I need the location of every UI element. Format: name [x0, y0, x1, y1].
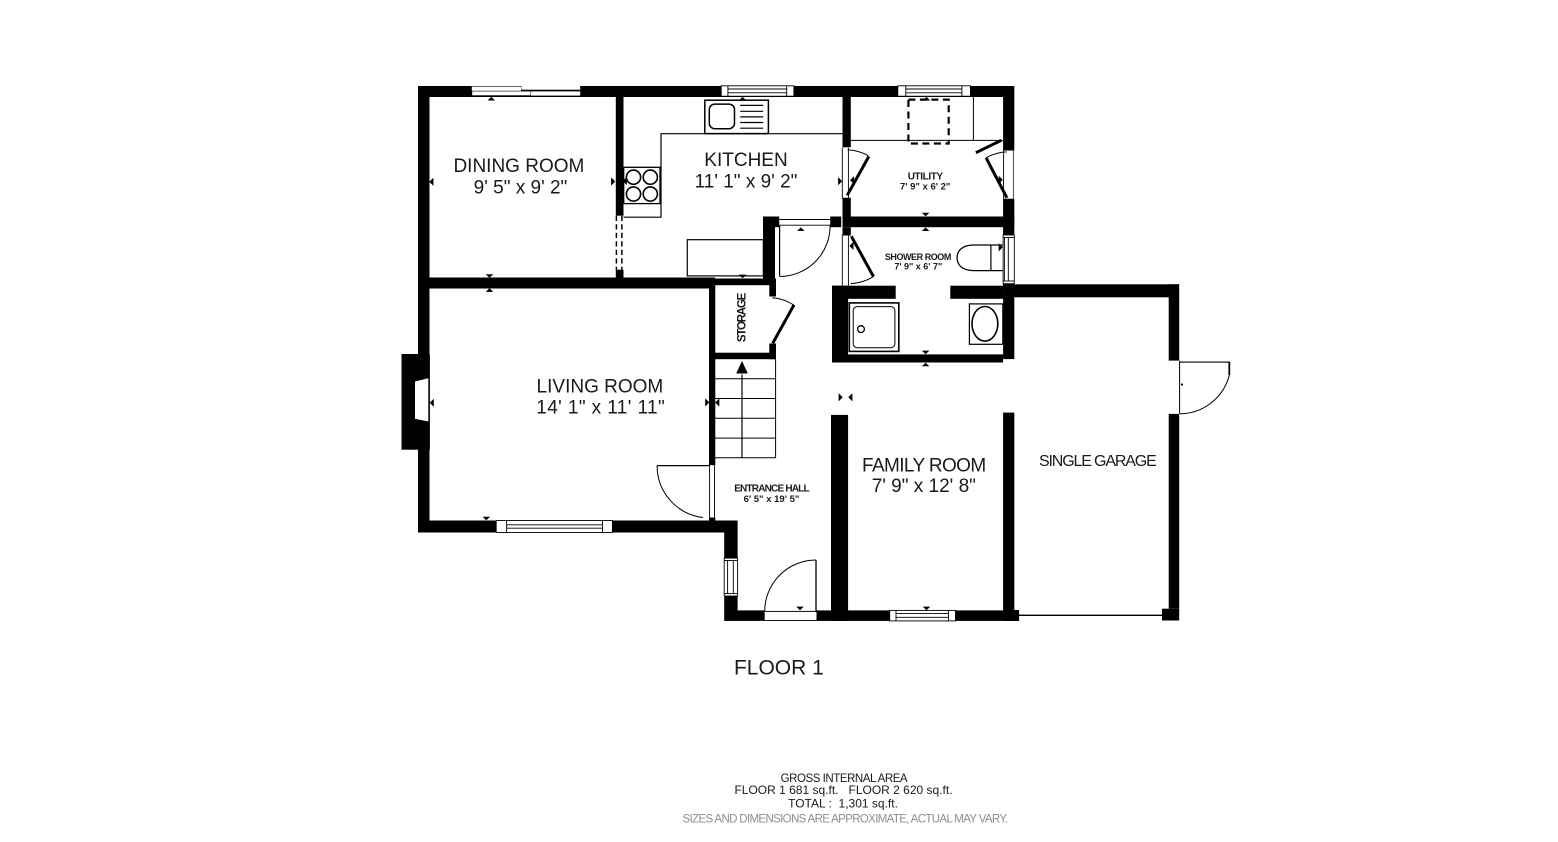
svg-text:7' 9" x 6' 2": 7' 9" x 6' 2"	[900, 181, 951, 192]
svg-text:SINGLE GARAGE: SINGLE GARAGE	[1039, 453, 1156, 470]
svg-text:KITCHEN: KITCHEN	[704, 150, 787, 171]
svg-text:LIVING ROOM: LIVING ROOM	[537, 377, 664, 398]
svg-text:SHOWER ROOM: SHOWER ROOM	[885, 252, 951, 262]
svg-text:9' 5" x 9' 2": 9' 5" x 9' 2"	[474, 178, 568, 199]
svg-text:DINING ROOM: DINING ROOM	[453, 156, 584, 177]
svg-text:11' 1" x 9' 2": 11' 1" x 9' 2"	[695, 172, 798, 193]
svg-text:14' 1" x 11' 11": 14' 1" x 11' 11"	[536, 398, 665, 419]
svg-text:SIZES AND DIMENSIONS ARE APPRO: SIZES AND DIMENSIONS ARE APPROXIMATE, AC…	[683, 814, 1008, 826]
svg-text:STORAGE: STORAGE	[737, 292, 749, 342]
svg-text:FLOOR 1: FLOOR 1	[734, 657, 824, 680]
svg-text:ENTRANCE HALL: ENTRANCE HALL	[734, 483, 809, 494]
svg-text:6' 5" x 19' 5": 6' 5" x 19' 5"	[744, 494, 800, 505]
svg-text:7' 9" x 6' 7": 7' 9" x 6' 7"	[894, 261, 942, 271]
svg-text:TOTAL : 1,301 sq.ft.: TOTAL : 1,301 sq.ft.	[788, 797, 898, 811]
svg-text:FLOOR 1 681 sq.ft. FLOOR 2 6: FLOOR 1 681 sq.ft. FLOOR 2 620 sq.ft.	[734, 783, 952, 797]
svg-text:FAMILY ROOM: FAMILY ROOM	[862, 456, 986, 477]
svg-text:7' 9" x 12' 8": 7' 9" x 12' 8"	[872, 476, 976, 497]
